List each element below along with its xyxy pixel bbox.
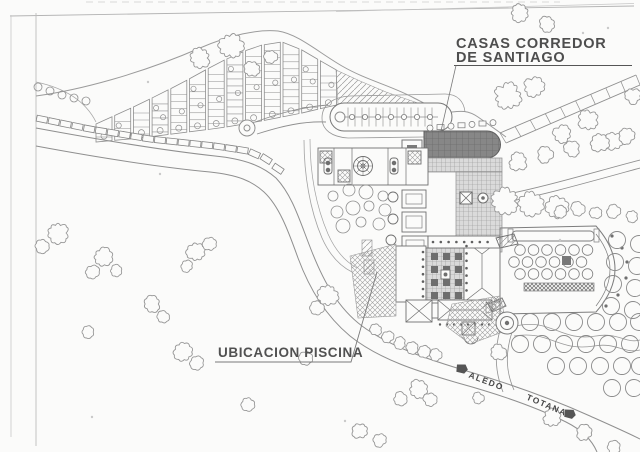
orchard-trees — [512, 232, 640, 397]
site-plan-drawing: CASAS CORREDOR DE SANTIAGO UBICACION PIS… — [0, 0, 640, 452]
parking-oval — [330, 103, 452, 131]
drawing-frame — [10, 2, 634, 446]
scanned-site-plan-page: CASAS CORREDOR DE SANTIAGO UBICACION PIS… — [0, 0, 640, 452]
svg-text:ALEDO: ALEDO — [467, 370, 505, 393]
aledo-direction-arrow-icon — [454, 362, 469, 376]
scattered-trees — [35, 4, 640, 448]
label-casas-corredor-line2: DE SANTIAGO — [456, 50, 566, 66]
label-ubicacion-piscina: UBICACION PISCINA — [218, 345, 363, 360]
